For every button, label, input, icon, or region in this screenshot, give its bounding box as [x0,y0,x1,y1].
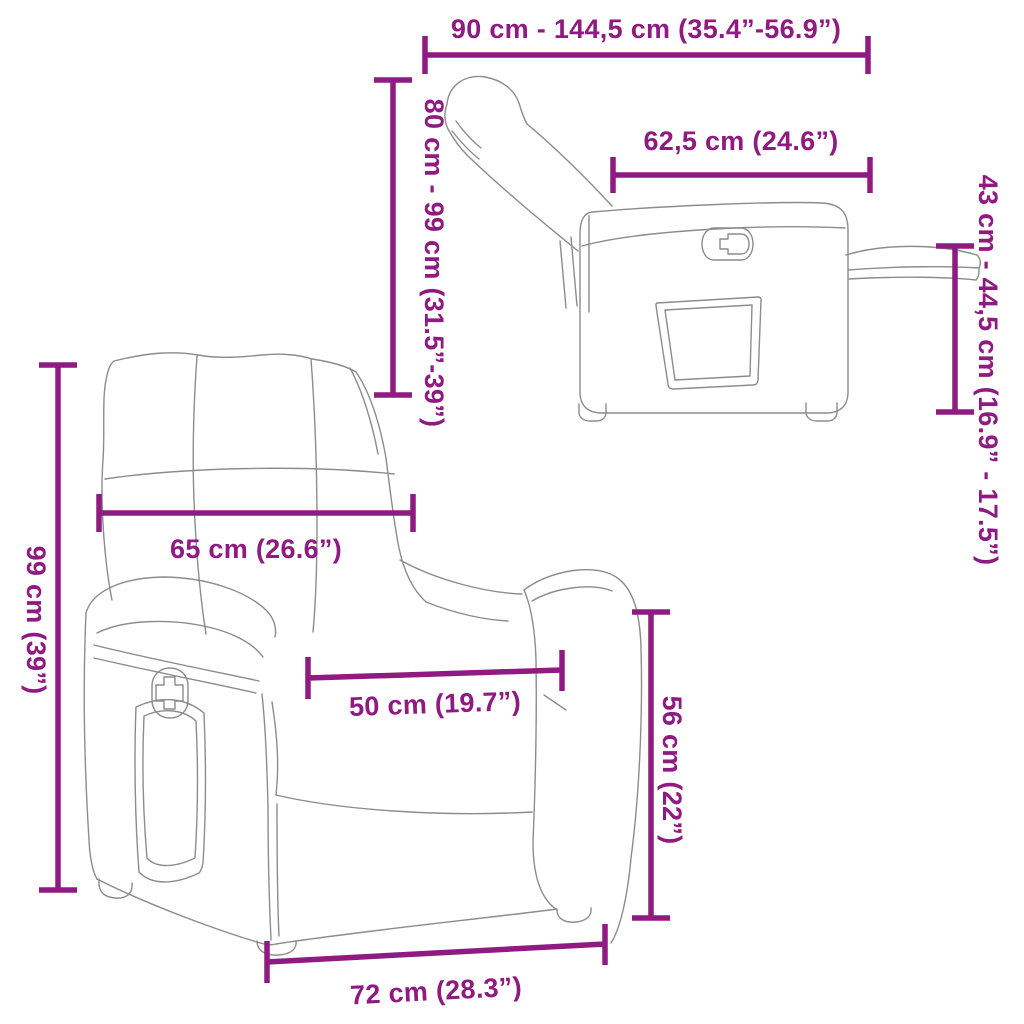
recline-handle-icon [702,228,753,260]
front-foot-right [557,908,591,922]
front-seat-left-seam [272,702,278,795]
dimension-line-reclined-height [374,80,412,395]
release-handle-cross-icon [156,677,183,709]
total-depth-label: 90 cm - 144,5 cm (35.4”-56.9”) [416,13,876,45]
side-backrest-seam-a [456,121,481,148]
seat-unit-depth-label: 62,5 cm (24.6”) [591,125,891,157]
dimension-line-footrest-height [936,246,974,412]
front-backrest-vseam-left [193,356,206,634]
total-height-label: 99 cm (39”) [20,520,52,720]
dimension-diagram: 90 cm - 144,5 cm (35.4”-56.9”) 62,5 cm (… [0,0,1024,1024]
front-base-corner-b [277,804,279,936]
side-backrest-seam-b [452,131,479,159]
dimension-line-seat-unit-depth [613,157,870,193]
reclined-height-label: 80 cm - 99 cm (31.5”-39”) [418,63,450,463]
front-left-armrest-front-edge [262,694,268,806]
front-right-armrest-outer [524,570,642,943]
side-body-top-seam [582,227,845,246]
side-pocket-outer [656,297,761,389]
side-backrest-bottom-edge [467,155,578,251]
front-base-corner-a [268,806,271,940]
side-pocket-inner [665,305,752,380]
front-left-side-edge [84,613,97,879]
front-seat-front-seam [276,795,532,814]
backrest-width-label: 65 cm (26.6”) [106,533,406,565]
armrest-height-label: 56 cm (22”) [656,670,688,870]
side-headrest-curve [447,77,527,124]
front-seatback-junction [426,602,508,621]
front-left-armrest-top-outer [86,577,276,637]
front-view-chair-drawing [84,353,641,955]
front-backrest-vseam-right [311,359,317,632]
front-backrest-right-inner [350,368,378,454]
front-right-armrest-inner [524,590,557,910]
dimension-line-backrest-width [99,494,413,532]
side-footrest-mid [848,267,979,270]
front-headrest-seam [105,468,394,479]
dimension-lines [39,36,974,983]
footrest-height-label: 43 cm - 44,5 cm (16.9” - 17.5”) [972,140,1004,600]
front-right-armrest-seam [532,587,612,601]
side-back-support-a [560,241,566,308]
front-seatback-bottom [400,560,522,594]
front-base-bottom-edge [97,879,557,945]
front-pocket-inner [143,711,197,866]
recline-handle-pull-icon [720,234,749,254]
